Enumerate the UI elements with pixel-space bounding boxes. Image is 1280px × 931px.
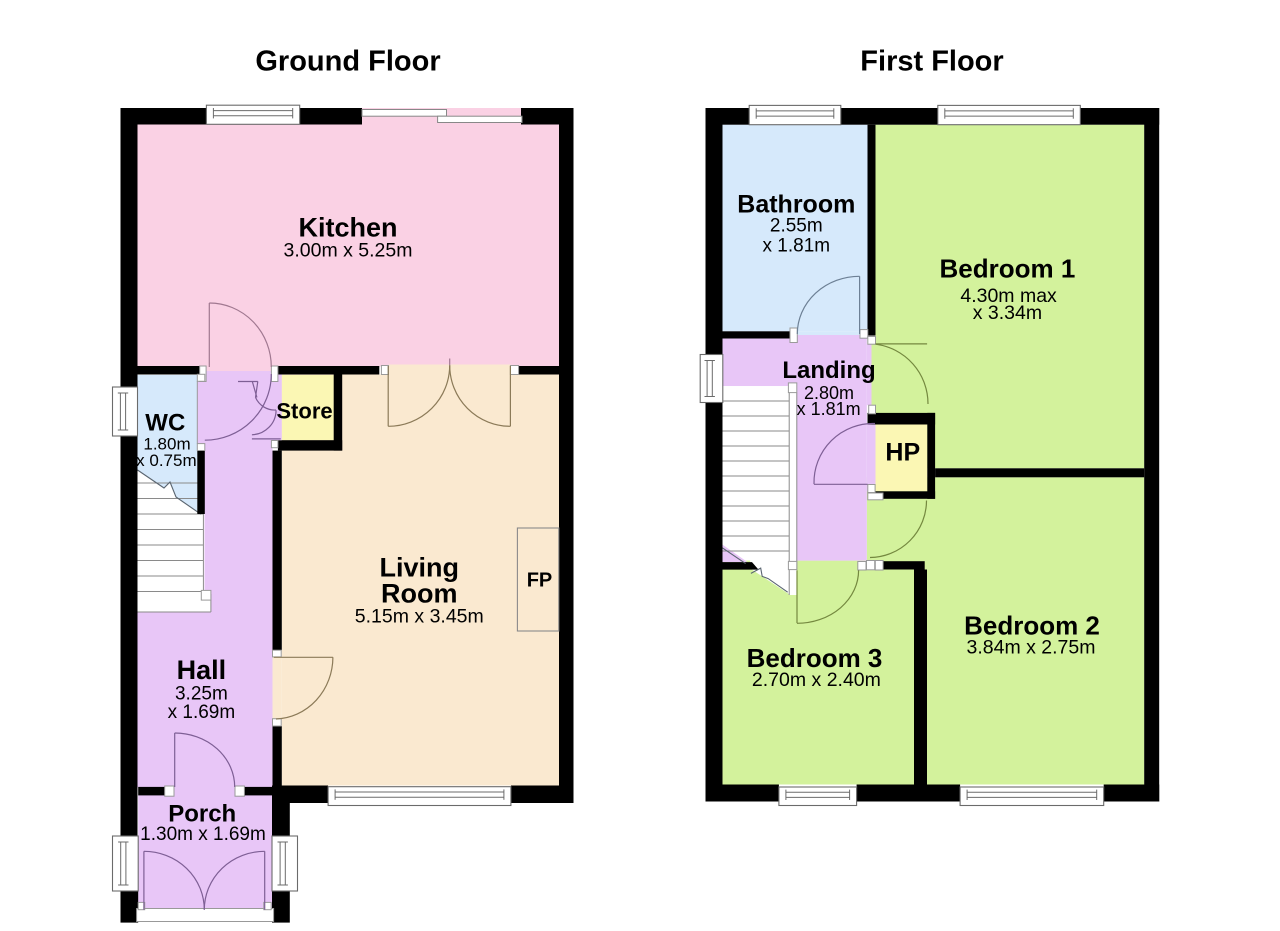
svg-text:Room: Room	[381, 578, 458, 608]
svg-text:x 1.81m: x 1.81m	[763, 236, 831, 257]
svg-text:Bathroom: Bathroom	[737, 191, 855, 219]
svg-text:5.15m x 3.45m: 5.15m x 3.45m	[355, 605, 484, 627]
svg-text:HP: HP	[885, 439, 920, 467]
svg-text:Landing: Landing	[782, 357, 875, 384]
svg-text:1.30m x 1.69m: 1.30m x 1.69m	[140, 824, 266, 845]
svg-text:x 0.75m: x 0.75m	[136, 451, 196, 470]
svg-text:Kitchen: Kitchen	[298, 212, 397, 242]
svg-text:First Floor: First Floor	[860, 45, 1003, 77]
svg-text:Store: Store	[276, 399, 332, 424]
svg-text:x 3.34m: x 3.34m	[973, 302, 1042, 324]
svg-text:FP: FP	[527, 570, 553, 592]
svg-text:Bedroom 1: Bedroom 1	[939, 254, 1075, 284]
svg-text:WC: WC	[145, 410, 185, 437]
svg-text:x 1.81m: x 1.81m	[797, 399, 861, 419]
svg-text:2.70m x 2.40m: 2.70m x 2.40m	[752, 669, 881, 691]
svg-text:Ground Floor: Ground Floor	[255, 46, 440, 78]
svg-text:Hall: Hall	[177, 655, 227, 685]
svg-text:3.00m x 5.25m: 3.00m x 5.25m	[284, 240, 413, 262]
svg-text:3.84m x 2.75m: 3.84m x 2.75m	[967, 637, 1096, 659]
svg-text:2.55m: 2.55m	[770, 216, 823, 237]
svg-text:x 1.69m: x 1.69m	[168, 702, 236, 723]
